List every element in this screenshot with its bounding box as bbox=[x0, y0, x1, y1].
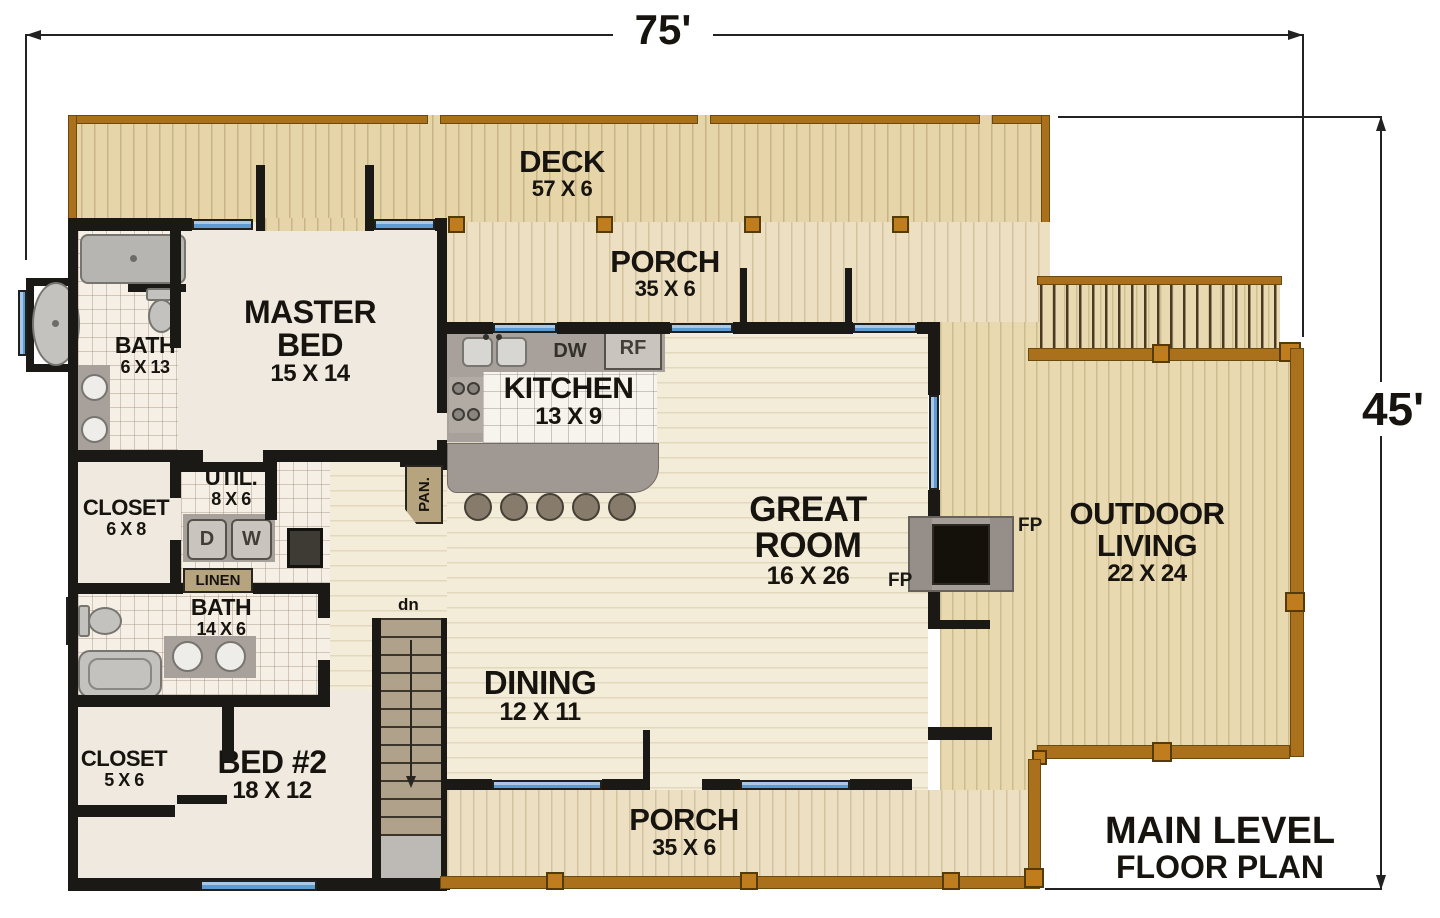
deck-stub-2 bbox=[365, 165, 374, 231]
burner-2 bbox=[467, 382, 480, 395]
wall-main-east-1 bbox=[928, 322, 940, 395]
stool-4 bbox=[572, 493, 600, 521]
porch-post-2 bbox=[740, 872, 758, 890]
fireplace-label-right: FP bbox=[1018, 515, 1042, 537]
master-sink-1 bbox=[81, 374, 108, 401]
wall-closet2-bottom bbox=[68, 805, 175, 817]
outdoor-rail-post-mid bbox=[1152, 344, 1170, 363]
kitchen-window bbox=[493, 323, 557, 333]
washer: W bbox=[231, 519, 272, 560]
stairs-down-label: dn bbox=[398, 595, 419, 615]
bath2-sink-2 bbox=[215, 641, 246, 672]
washer-label: W bbox=[242, 528, 261, 551]
stair-wall-west bbox=[372, 618, 381, 890]
fireplace-firebox bbox=[932, 524, 990, 585]
dim-height-arrow-top bbox=[1376, 116, 1386, 131]
wall-ms-left bbox=[68, 222, 78, 890]
dining-window bbox=[492, 780, 602, 790]
outdoor-railing bbox=[1040, 284, 1280, 348]
kitchen-faucet-2 bbox=[496, 334, 502, 340]
kitchen-sink-basin-1 bbox=[462, 337, 493, 367]
great-window-bottom bbox=[740, 780, 850, 790]
outdoor-living-label: OUTDOOR LIVING 22 X 24 bbox=[1057, 498, 1237, 587]
stool-3 bbox=[536, 493, 564, 521]
wall-y450-1 bbox=[68, 450, 203, 462]
stair-direction-line bbox=[410, 640, 412, 778]
wall-closet2-jamb bbox=[177, 795, 227, 804]
master-bed-label: MASTER BED 15 X 14 bbox=[235, 296, 385, 387]
deck-edge-top-1 bbox=[68, 115, 428, 124]
dim-height-ext-bottom bbox=[1045, 888, 1382, 890]
linen-label: LINEN bbox=[196, 572, 241, 589]
kitchen-faucet-1 bbox=[483, 334, 489, 340]
dryer-label: D bbox=[200, 528, 214, 551]
master-window-2 bbox=[374, 219, 435, 230]
deck-post-3 bbox=[744, 216, 761, 233]
master-window-1 bbox=[192, 219, 253, 230]
master-deck-door-opening bbox=[265, 218, 365, 231]
wall-main-east-stub-2 bbox=[928, 727, 992, 740]
kitchen-island bbox=[447, 443, 659, 493]
deck-stub-1 bbox=[256, 165, 265, 231]
refrigerator-label: RF bbox=[620, 337, 647, 360]
master-tub-drain bbox=[52, 320, 59, 327]
deck-post-4 bbox=[892, 216, 909, 233]
dryer: D bbox=[187, 519, 227, 560]
chase bbox=[287, 528, 323, 568]
bed2-window-bottom bbox=[200, 880, 317, 891]
floor-plan: 75' 45' DECK 57 X 6 PORCH 35 X 6 bbox=[0, 0, 1440, 918]
wall-master-east-1 bbox=[437, 222, 447, 413]
bath2-tub-inner bbox=[88, 658, 152, 690]
deck-edge-left bbox=[68, 115, 77, 225]
outdoor-post-bottom bbox=[1152, 742, 1172, 762]
wall-y583-2 bbox=[253, 583, 330, 594]
wall-bath2-east-1 bbox=[318, 594, 330, 618]
deck-edge-top-2 bbox=[440, 115, 698, 124]
tub-window bbox=[18, 290, 27, 356]
deck-label: DECK 57 X 6 bbox=[492, 146, 632, 201]
closet-master-label: CLOSET 6 X 8 bbox=[71, 497, 181, 538]
wall-main-top-2 bbox=[557, 322, 670, 334]
porch-post-corner bbox=[1024, 868, 1044, 888]
outdoor-rail-top bbox=[1037, 276, 1282, 285]
wall-main-east-2 bbox=[928, 490, 940, 518]
dim-width-arrow-right bbox=[1288, 30, 1303, 40]
wall-util-east bbox=[265, 462, 277, 520]
dim-width-ext-left bbox=[25, 34, 27, 260]
porch-post-3 bbox=[942, 872, 960, 890]
porch-post-wall-2 bbox=[845, 268, 852, 328]
deck-post-1 bbox=[448, 216, 465, 233]
burner-3 bbox=[452, 408, 465, 421]
kitchen-sink-basin-2 bbox=[496, 337, 527, 367]
porch-post-1 bbox=[546, 872, 564, 890]
fireplace-side-left bbox=[910, 518, 932, 590]
stair-landing bbox=[381, 836, 441, 878]
master-sink-2 bbox=[81, 416, 108, 443]
outdoor-edge-right bbox=[1290, 348, 1304, 757]
toilet-bath2-bowl bbox=[88, 607, 122, 635]
page-title: MAIN LEVEL FLOOR PLAN bbox=[1050, 812, 1390, 884]
bath2-sink-1 bbox=[172, 641, 203, 672]
wall-main-top-3 bbox=[733, 322, 853, 334]
great-window-top-2 bbox=[853, 323, 917, 333]
porch-top-label: PORCH 35 X 6 bbox=[595, 246, 735, 301]
wall-closet-util-2 bbox=[170, 540, 181, 583]
shower-drain bbox=[130, 255, 137, 262]
great-room-label: GREAT ROOM 16 X 26 bbox=[733, 492, 883, 590]
deck-post-2 bbox=[596, 216, 613, 233]
wall-closet-util-1 bbox=[170, 450, 181, 498]
wall-bath-bed bbox=[170, 222, 181, 348]
burner-4 bbox=[467, 408, 480, 421]
pantry-label: PAN. bbox=[416, 477, 433, 512]
wall-util-top bbox=[181, 462, 265, 472]
stool-2 bbox=[500, 493, 528, 521]
outdoor-post-right bbox=[1285, 592, 1305, 612]
burner-1 bbox=[452, 382, 465, 395]
wall-main-east-stub-1 bbox=[928, 620, 990, 629]
fireplace-label-left: FP bbox=[888, 570, 912, 592]
bath2-label: BATH 14 X 6 bbox=[171, 596, 271, 638]
stool-1 bbox=[464, 493, 492, 521]
deck-edge-right bbox=[1041, 115, 1050, 235]
closet-bed2-label: CLOSET 5 X 6 bbox=[69, 748, 179, 789]
porch-door-stub bbox=[643, 730, 650, 780]
porch-post-wall-1 bbox=[740, 268, 747, 328]
dishwasher-label: DW bbox=[540, 340, 600, 363]
wall-y695 bbox=[68, 695, 330, 707]
fireplace-side-right bbox=[990, 518, 1012, 590]
outdoor-floor-porch-link bbox=[940, 747, 1037, 790]
dim-height-label: 45' bbox=[1348, 382, 1438, 436]
great-window-top-1 bbox=[670, 323, 733, 333]
great-window-east bbox=[929, 395, 939, 490]
dining-label: DINING 12 X 11 bbox=[465, 666, 615, 726]
dim-height-line bbox=[1380, 116, 1382, 890]
dim-width-arrow-left bbox=[26, 30, 41, 40]
stair-direction-arrow bbox=[406, 776, 416, 788]
deck-edge-top-3 bbox=[710, 115, 980, 124]
linen-cabinet: LINEN bbox=[183, 568, 253, 593]
stool-5 bbox=[608, 493, 636, 521]
wall-y583-1 bbox=[68, 583, 183, 594]
pantry-cabinet: PAN. bbox=[405, 465, 443, 524]
dim-height-ext-top bbox=[1058, 116, 1382, 118]
dim-width-ext-right bbox=[1302, 34, 1304, 337]
dim-width-label: 75' bbox=[613, 6, 713, 54]
kitchen-label: KITCHEN 13 X 9 bbox=[496, 374, 641, 430]
porch-bottom-label: PORCH 35 X 6 bbox=[614, 804, 754, 860]
wall-closet2-east bbox=[222, 707, 234, 762]
wall-main-top-1 bbox=[440, 322, 493, 334]
